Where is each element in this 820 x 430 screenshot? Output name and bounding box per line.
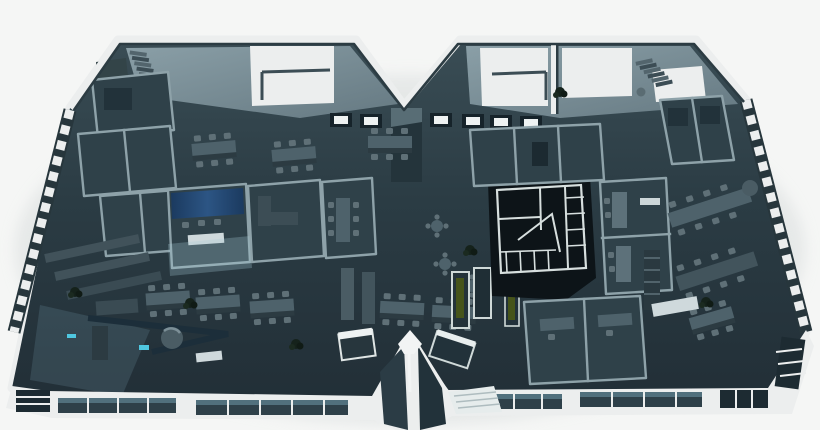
core-block-black <box>488 176 596 300</box>
window-glass <box>580 392 702 397</box>
chair <box>605 212 611 218</box>
desk <box>616 246 631 282</box>
skylight <box>462 114 484 128</box>
desk-bank <box>191 132 238 168</box>
chair <box>328 216 334 222</box>
chair <box>608 252 614 258</box>
core-cell <box>566 229 585 230</box>
chair <box>328 230 334 236</box>
peak-mullion <box>409 352 410 392</box>
chair <box>548 334 555 340</box>
chair <box>604 198 610 204</box>
sofa <box>96 299 139 316</box>
core-cell <box>567 245 586 246</box>
desk <box>598 313 633 327</box>
white-shelf <box>640 198 660 205</box>
skylight <box>330 113 352 127</box>
skylight <box>430 113 452 127</box>
core-cell <box>566 213 585 214</box>
corner-window-block <box>16 390 50 412</box>
rooms-mid-right <box>600 178 672 310</box>
desk <box>540 317 575 331</box>
chair <box>353 216 359 222</box>
floor-plan-render: 3D isometric office floor plan render <box>0 0 820 430</box>
chair <box>609 266 615 272</box>
chair <box>606 330 613 336</box>
core-stall <box>548 250 549 271</box>
render-stage: 3D isometric office floor plan render <box>0 0 820 430</box>
desk-bank <box>249 291 295 326</box>
core-body <box>488 176 596 300</box>
chair <box>353 202 359 208</box>
table <box>336 198 350 242</box>
atrium-void <box>562 48 632 98</box>
cabinet <box>668 108 688 126</box>
long-table <box>362 272 375 324</box>
desk-bank <box>145 283 191 318</box>
olive-panel <box>456 278 464 318</box>
skylight <box>490 115 512 129</box>
skylight <box>360 114 382 128</box>
chair <box>214 219 221 225</box>
desk-bank <box>195 287 241 322</box>
cyan-accent <box>67 334 76 338</box>
rooms-top-right <box>470 124 604 186</box>
cabinet <box>104 88 132 110</box>
booth <box>474 268 491 318</box>
core-cell <box>565 197 584 198</box>
chair <box>198 220 205 226</box>
desk-bank <box>271 138 318 174</box>
core-stall <box>534 250 535 271</box>
stair-newel <box>637 88 646 97</box>
cyan-accent <box>139 345 149 350</box>
olive-panel <box>508 296 515 320</box>
chair <box>353 230 359 236</box>
sofa <box>92 326 108 360</box>
doorway <box>532 142 548 166</box>
window-glass <box>196 400 348 405</box>
chair <box>182 222 189 228</box>
desk <box>612 192 627 228</box>
column-cylinder <box>742 180 758 196</box>
rooms-far-right <box>660 96 734 164</box>
blue-feature-wall <box>171 188 244 219</box>
sofa <box>258 196 271 226</box>
core-stall <box>520 251 521 272</box>
long-table <box>341 268 354 320</box>
core-stall <box>506 252 507 272</box>
corner-window-block <box>720 390 768 408</box>
atrium-beam-shade <box>556 44 559 114</box>
desk-bank <box>379 293 425 327</box>
desk-bank <box>368 128 412 160</box>
chair <box>328 202 334 208</box>
cabinet <box>700 106 720 124</box>
atrium-void <box>480 48 548 106</box>
